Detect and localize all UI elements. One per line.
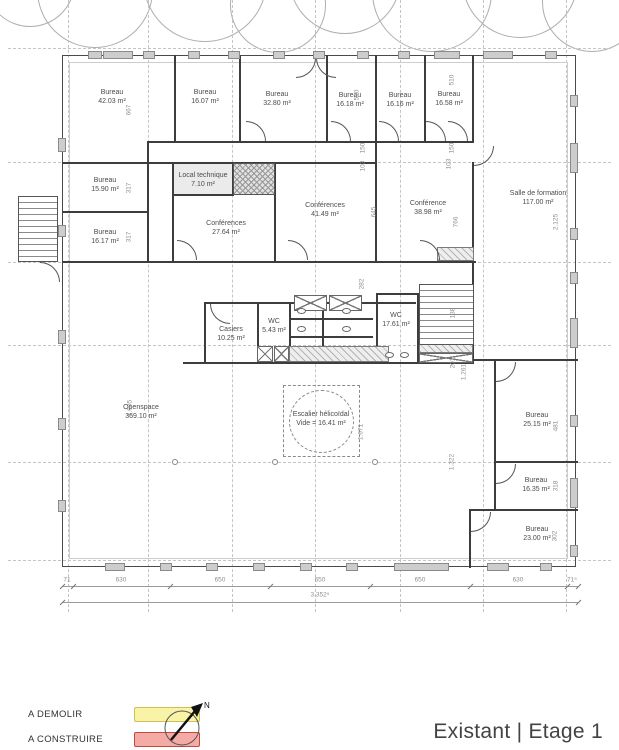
column [253, 563, 265, 571]
toilet-fixture [297, 326, 306, 332]
room-label: Bureau42.03 m² [98, 88, 126, 106]
floor-drain [372, 459, 378, 465]
column [58, 138, 66, 152]
dimension-label: 650 [315, 577, 326, 584]
room-label: Bureau16.17 m² [91, 228, 119, 246]
column [487, 563, 509, 571]
dimension-tick [576, 600, 582, 606]
room-label: Bureau25.15 m² [523, 411, 551, 429]
column [105, 563, 125, 571]
dimension-label: 1.322 [449, 454, 456, 470]
dimension-label: 481 [553, 421, 560, 432]
column [570, 545, 578, 557]
column [313, 51, 325, 59]
dimension-label: 667 [126, 105, 133, 116]
dimension-label: 71⁵ [567, 577, 577, 584]
dimension-label: 317 [126, 232, 133, 243]
room-label: Conférences27.64 m² [206, 219, 246, 237]
hatched-area [437, 247, 474, 261]
drawing-title: Existant | Etage 1 [433, 720, 603, 744]
wall [148, 141, 474, 143]
dimension-label: 318 [553, 481, 560, 492]
dimension-label: 3.352⁵ [311, 592, 330, 599]
dimension-label: 2.125 [553, 214, 560, 230]
wall [147, 141, 149, 263]
column [570, 228, 578, 240]
room-label: Salle de formation117.00 m² [510, 189, 566, 207]
column [357, 51, 369, 59]
room-label: Bureau15.90 m² [91, 176, 119, 194]
column [300, 563, 312, 571]
dimension-label: 1.671 [358, 424, 365, 440]
wall [172, 162, 174, 262]
room-label: Bureau16.35 m² [522, 476, 550, 494]
column [570, 318, 578, 348]
legend-label: A DEMOLIR [28, 709, 108, 720]
hatched-area [419, 344, 473, 353]
column [58, 225, 66, 237]
room-label: Escalier hélicoïdalVide = 16.41 m² [293, 410, 349, 428]
wall [474, 359, 578, 361]
dimension-line [62, 586, 578, 587]
elevator-shaft [274, 346, 289, 362]
dimension-label: 645 [371, 207, 378, 218]
floor-drain [172, 459, 178, 465]
wall [174, 55, 176, 142]
room-label: Bureau23.00 m² [523, 525, 551, 543]
cross-hatched-area [233, 163, 275, 195]
dimension-label: 302 [552, 531, 559, 542]
dimension-label: 103 [360, 161, 367, 172]
room-label: WC17.61 m² [382, 311, 410, 329]
wall [375, 55, 377, 142]
column [103, 51, 133, 59]
column [394, 563, 449, 571]
column [228, 51, 240, 59]
toilet-fixture [385, 352, 394, 358]
wall [376, 293, 419, 295]
wall [62, 261, 476, 263]
floor-plan-drawing: Bureau42.03 m²Bureau16.07 m²Bureau32.80 … [0, 0, 619, 750]
column [545, 51, 557, 59]
room-label: Conférences41.49 m² [305, 201, 345, 219]
dimension-label: 150 [360, 143, 367, 154]
toilet-fixture [342, 308, 351, 314]
dimension-line [62, 602, 578, 603]
dimension-label: 317 [126, 183, 133, 194]
wall [375, 141, 377, 263]
column [570, 272, 578, 284]
dimension-label: 282 [359, 279, 366, 290]
room-label: Bureau16.07 m² [191, 88, 219, 106]
elevator-shaft [257, 346, 273, 362]
column [88, 51, 102, 59]
stair-treads [18, 196, 58, 262]
toilet-fixture [297, 308, 306, 314]
wall [469, 509, 578, 511]
column [188, 51, 200, 59]
column [398, 51, 410, 59]
wall [62, 211, 148, 213]
legend-label: A CONSTRUIRE [28, 734, 108, 745]
room-label: Bureau16.58 m² [435, 90, 463, 108]
wall [472, 55, 474, 143]
floor-drain [272, 459, 278, 465]
wall [172, 194, 234, 196]
column [58, 500, 66, 512]
dimension-label: 1.261 [461, 364, 468, 380]
dimension-label: 1.905 [127, 400, 134, 416]
floor-plan: Bureau42.03 m²Bureau16.07 m²Bureau32.80 … [0, 0, 619, 750]
wall [289, 336, 373, 338]
dimension-label: 766 [453, 217, 460, 228]
room-label: Bureau32.80 m² [263, 90, 291, 108]
north-label: N [204, 701, 210, 710]
wall [289, 318, 373, 320]
grid-line [8, 48, 611, 49]
hatched-area [289, 346, 389, 362]
wall [494, 461, 578, 463]
column [570, 95, 578, 107]
dimension-tick [576, 584, 582, 590]
stair-treads [419, 284, 474, 345]
room-label: Local technique7.10 m² [178, 171, 227, 189]
toilet-fixture [342, 326, 351, 332]
dimension-label: 201 [450, 358, 457, 369]
door-arc [40, 262, 60, 282]
dimension-label: 71 [63, 577, 70, 584]
column [346, 563, 358, 571]
column [58, 418, 66, 430]
north-arrow-icon: N [156, 698, 216, 750]
wall [62, 162, 150, 164]
column [570, 478, 578, 508]
column [143, 51, 155, 59]
dimension-label: 103 [446, 159, 453, 170]
column [483, 51, 513, 59]
tree-canopy [542, 0, 619, 52]
tree-canopy [37, 0, 153, 48]
column [273, 51, 285, 59]
column [206, 563, 218, 571]
dimension-label: 150 [449, 143, 456, 154]
dimension-label: 630 [513, 577, 524, 584]
room-label: Casiers10.25 m² [217, 325, 245, 343]
dimension-label: 650 [215, 577, 226, 584]
room-label: Conférence38.98 m² [410, 199, 446, 217]
dimension-label: 138 [450, 308, 457, 319]
elevator-shaft [419, 353, 473, 363]
dimension-label: 510 [449, 75, 456, 86]
column [58, 330, 66, 344]
column [570, 415, 578, 427]
column [570, 143, 578, 173]
column [434, 51, 460, 59]
column [160, 563, 172, 571]
wall [239, 55, 241, 142]
toilet-fixture [400, 352, 409, 358]
dimension-label: 630 [116, 577, 127, 584]
wall [204, 302, 206, 364]
room-label: Bureau16.16 m² [386, 91, 414, 109]
dimension-label: 650 [415, 577, 426, 584]
dimension-label: 510 [354, 90, 361, 101]
room-label: WC5.43 m² [262, 317, 286, 335]
column [540, 563, 552, 571]
